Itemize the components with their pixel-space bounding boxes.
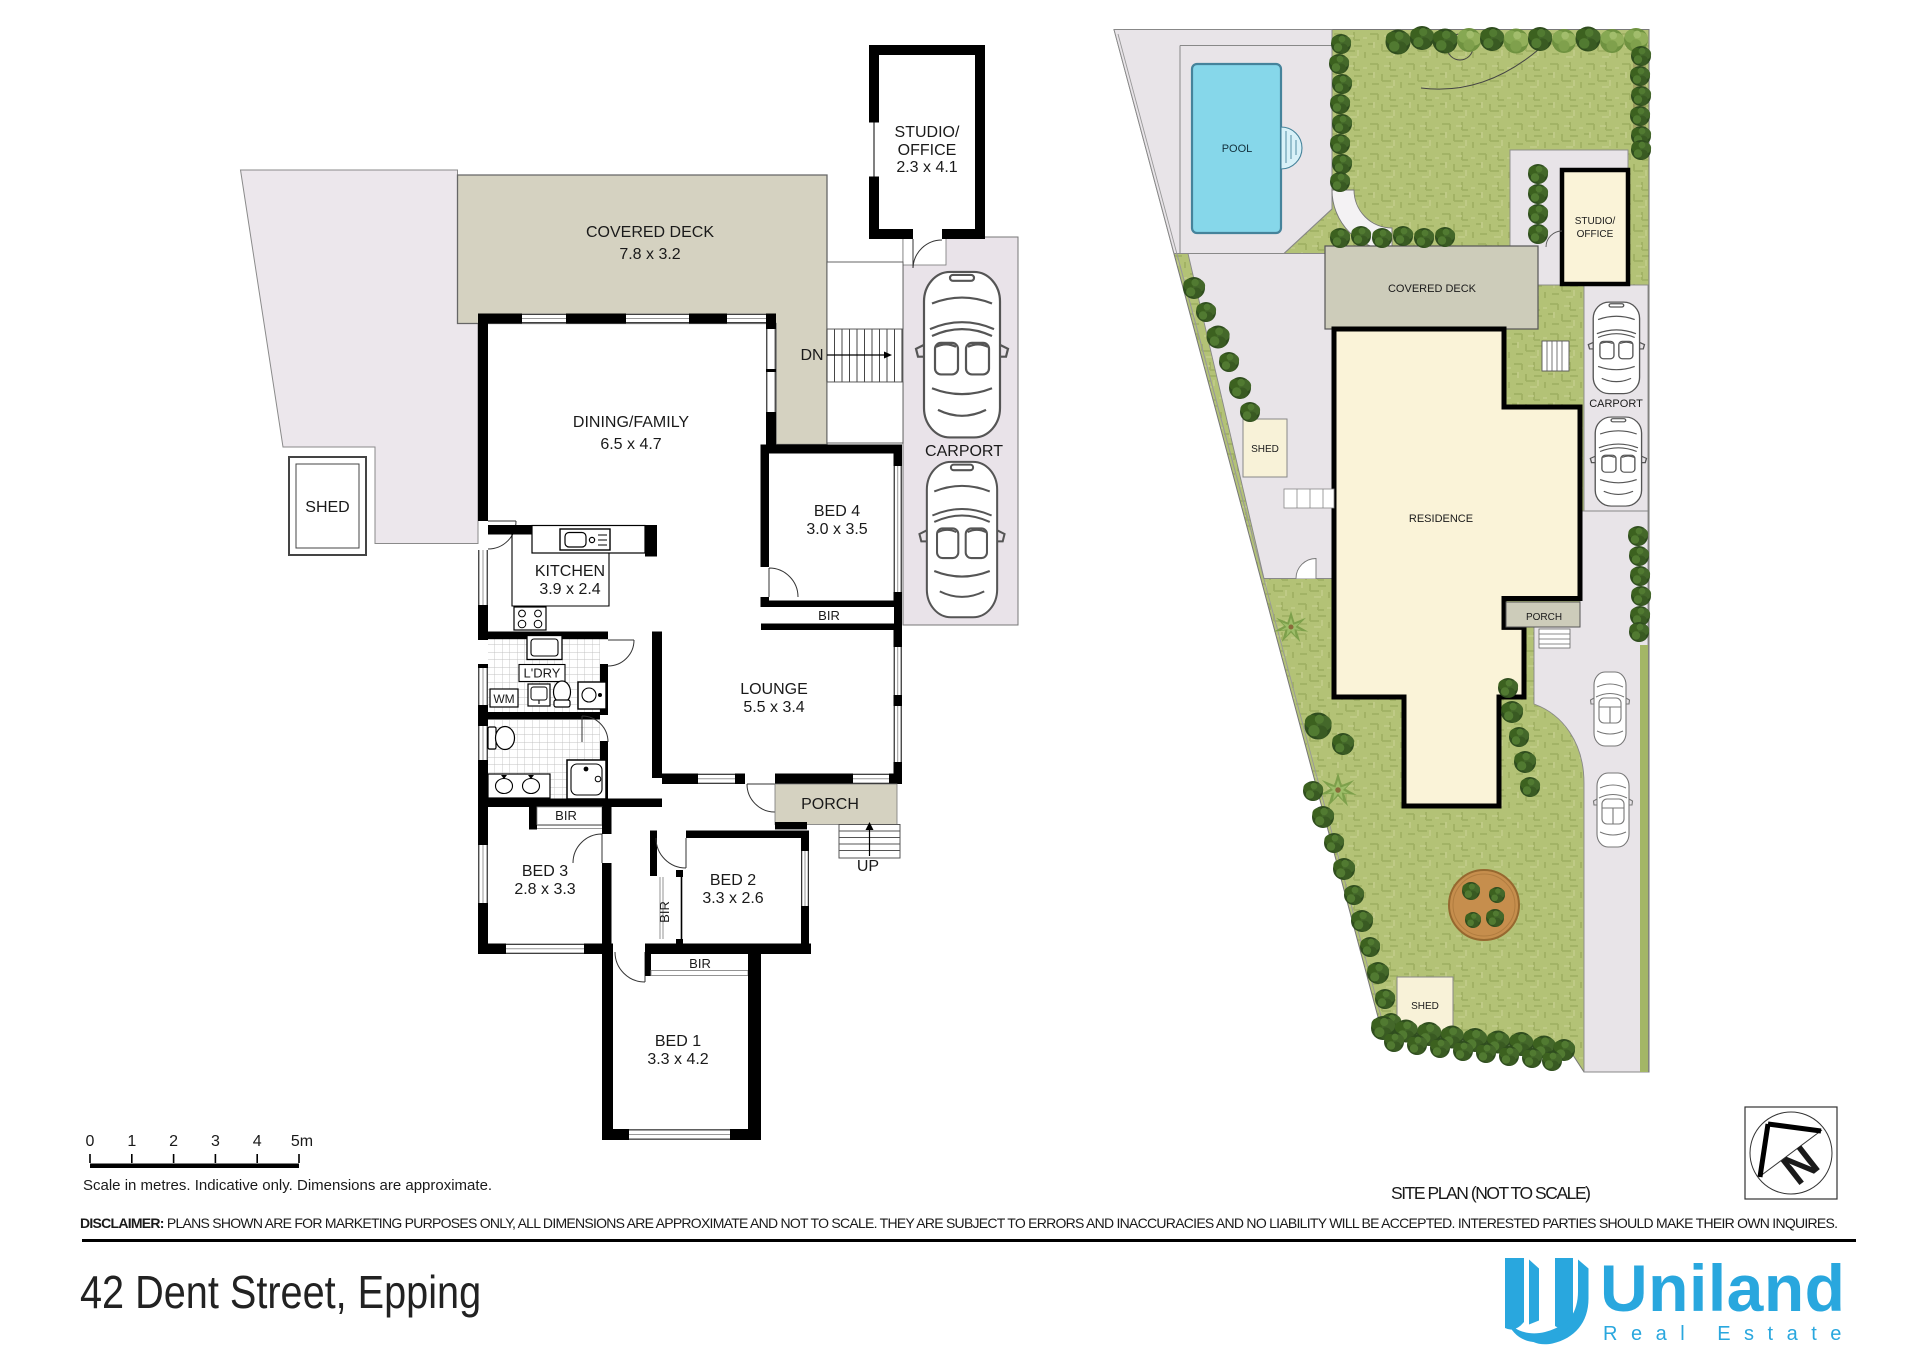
svg-text:BIR: BIR [555,808,577,823]
svg-text:Uniland: Uniland [1600,1251,1846,1325]
svg-text:0: 0 [86,1133,95,1150]
svg-text:3: 3 [211,1133,220,1150]
svg-text:UP: UP [857,858,879,875]
svg-text:6.5 x 4.7: 6.5 x 4.7 [600,436,661,453]
svg-text:2.8 x 3.3: 2.8 x 3.3 [514,881,575,898]
svg-text:1: 1 [127,1133,136,1150]
svg-text:3.3 x 2.6: 3.3 x 2.6 [702,890,763,907]
svg-text:DISCLAIMER: PLANS SHOWN ARE FO: DISCLAIMER: PLANS SHOWN ARE FOR MARKETIN… [80,1215,1838,1231]
svg-text:CARPORT: CARPORT [925,443,1003,460]
svg-text:COVERED DECK: COVERED DECK [1388,283,1477,295]
svg-text:LOUNGE: LOUNGE [740,681,808,698]
svg-text:Real Estate: Real Estate [1603,1323,1855,1345]
svg-text:2.3 x 4.1: 2.3 x 4.1 [896,159,957,176]
svg-text:5.5 x 3.4: 5.5 x 3.4 [743,699,804,716]
svg-text:DINING/FAMILY: DINING/FAMILY [573,414,689,431]
svg-text:DN: DN [800,347,823,364]
svg-text:BED 2: BED 2 [710,872,756,889]
svg-text:SHED: SHED [1251,444,1279,455]
svg-text:BIR: BIR [657,901,672,923]
svg-text:RESIDENCE: RESIDENCE [1409,513,1473,525]
svg-text:WM: WM [493,692,514,706]
svg-text:OFFICE: OFFICE [898,142,957,159]
svg-text:PORCH: PORCH [1526,612,1562,623]
svg-text:SHED: SHED [1411,1001,1439,1012]
svg-text:PORCH: PORCH [801,796,859,813]
svg-text:SITE PLAN (NOT TO SCALE): SITE PLAN (NOT TO SCALE) [1391,1183,1591,1203]
svg-text:KITCHEN: KITCHEN [535,563,605,580]
svg-text:OFFICE: OFFICE [1577,229,1614,240]
svg-text:2: 2 [169,1133,178,1150]
svg-text:STUDIO/: STUDIO/ [895,124,960,141]
svg-text:3.3 x 4.2: 3.3 x 4.2 [647,1051,708,1068]
svg-text:5m: 5m [291,1133,313,1150]
svg-text:POOL: POOL [1222,143,1253,155]
svg-text:BIR: BIR [689,956,711,971]
svg-text:CARPORT: CARPORT [1589,398,1643,410]
svg-text:4: 4 [253,1133,262,1150]
svg-text:Scale in metres. Indicative on: Scale in metres. Indicative only. Dimens… [83,1177,492,1194]
svg-text:BED 3: BED 3 [522,863,568,880]
svg-text:COVERED DECK: COVERED DECK [586,224,714,241]
svg-text:BED 1: BED 1 [655,1033,701,1050]
svg-text:3.9 x 2.4: 3.9 x 2.4 [539,581,600,598]
svg-text:STUDIO/: STUDIO/ [1575,216,1616,227]
svg-text:7.8 x 3.2: 7.8 x 3.2 [619,246,680,263]
svg-text:BIR: BIR [818,608,840,623]
svg-text:L'DRY: L'DRY [524,666,561,681]
svg-text:SHED: SHED [305,499,349,516]
svg-text:3.0 x 3.5: 3.0 x 3.5 [806,521,867,538]
svg-text:42 Dent Street, Epping: 42 Dent Street, Epping [80,1267,481,1318]
svg-text:BED 4: BED 4 [814,503,860,520]
